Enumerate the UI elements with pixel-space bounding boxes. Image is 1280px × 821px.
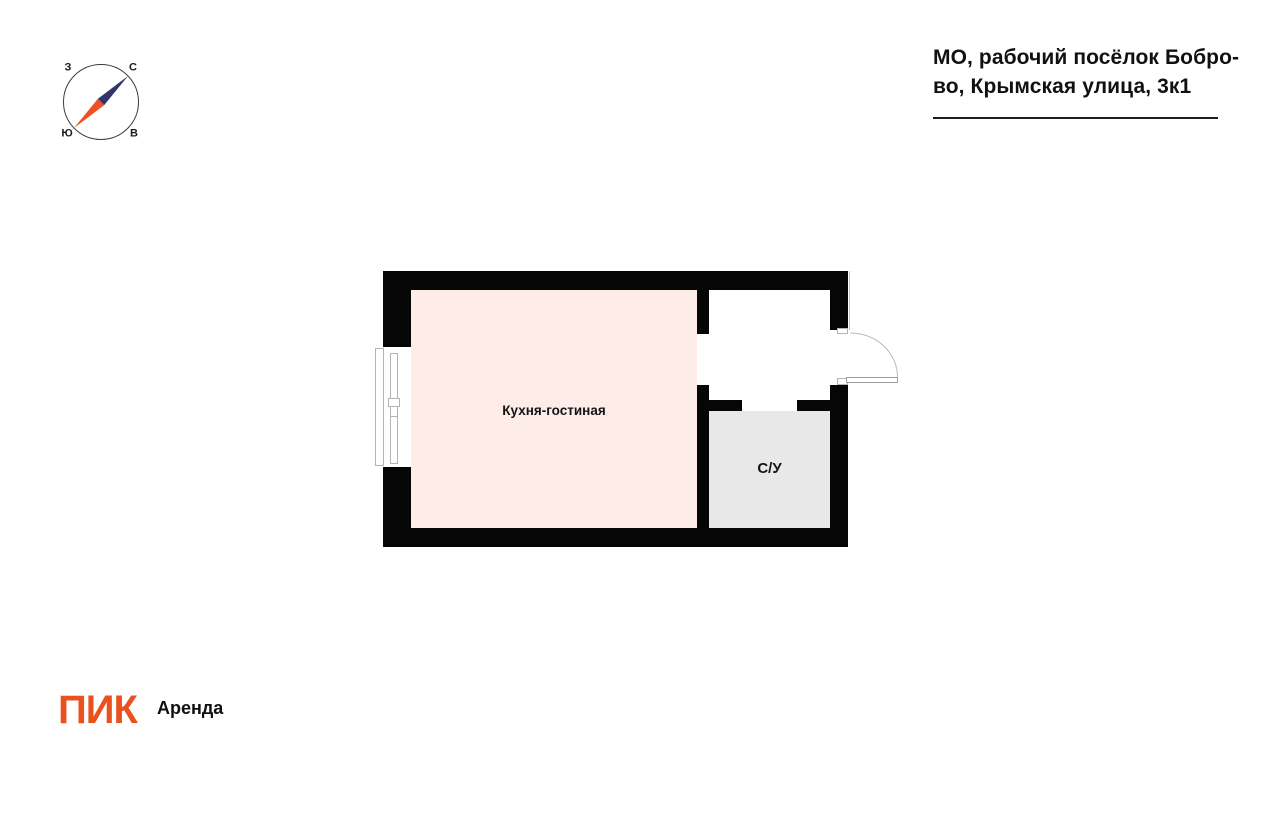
room-hallway: [709, 290, 830, 400]
address-title: МО, рабочий посёлок Бобро- во, Крымская …: [933, 43, 1233, 101]
address-line-1: МО, рабочий посёлок Бобро-: [933, 43, 1233, 72]
entrance-opening: [830, 330, 848, 385]
interior-doorway: [697, 334, 709, 385]
pik-logo-suffix: Аренда: [157, 699, 223, 717]
compass-east-label: В: [130, 129, 138, 140]
compass: З С Ю В: [60, 60, 144, 144]
floorplan-page: З С Ю В МО, рабочий посёлок Бобро- во, К…: [0, 0, 1280, 821]
address-line-2: во, Крымская улица, 3к1: [933, 72, 1233, 101]
room-label-bathroom: С/У: [709, 460, 830, 477]
room-label-kitchen-living: Кухня-гостиная: [411, 403, 697, 418]
compass-north-label: С: [129, 63, 137, 74]
address-underline: [933, 117, 1218, 119]
compass-south-label: Ю: [61, 129, 72, 140]
bathroom-doorway: [742, 400, 797, 411]
pik-logo-text: ПИК: [58, 690, 137, 730]
compass-west-label: З: [65, 63, 72, 74]
